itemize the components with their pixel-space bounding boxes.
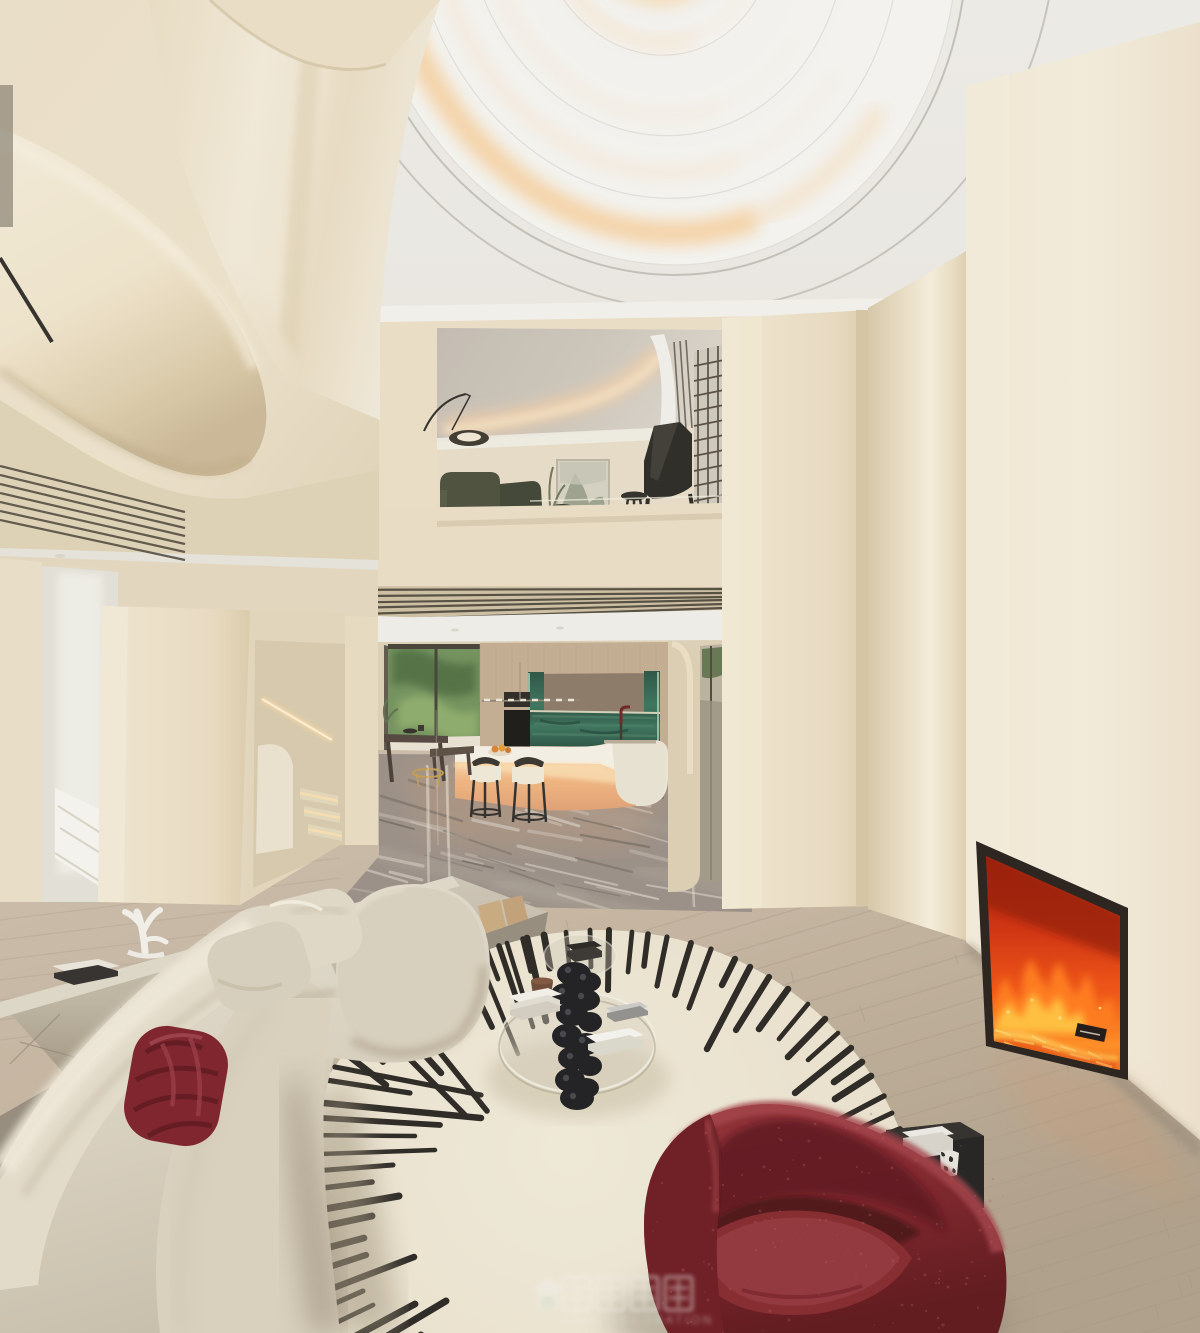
svg-text:XINYI DECORATION: XINYI DECORATION: [560, 1313, 714, 1327]
